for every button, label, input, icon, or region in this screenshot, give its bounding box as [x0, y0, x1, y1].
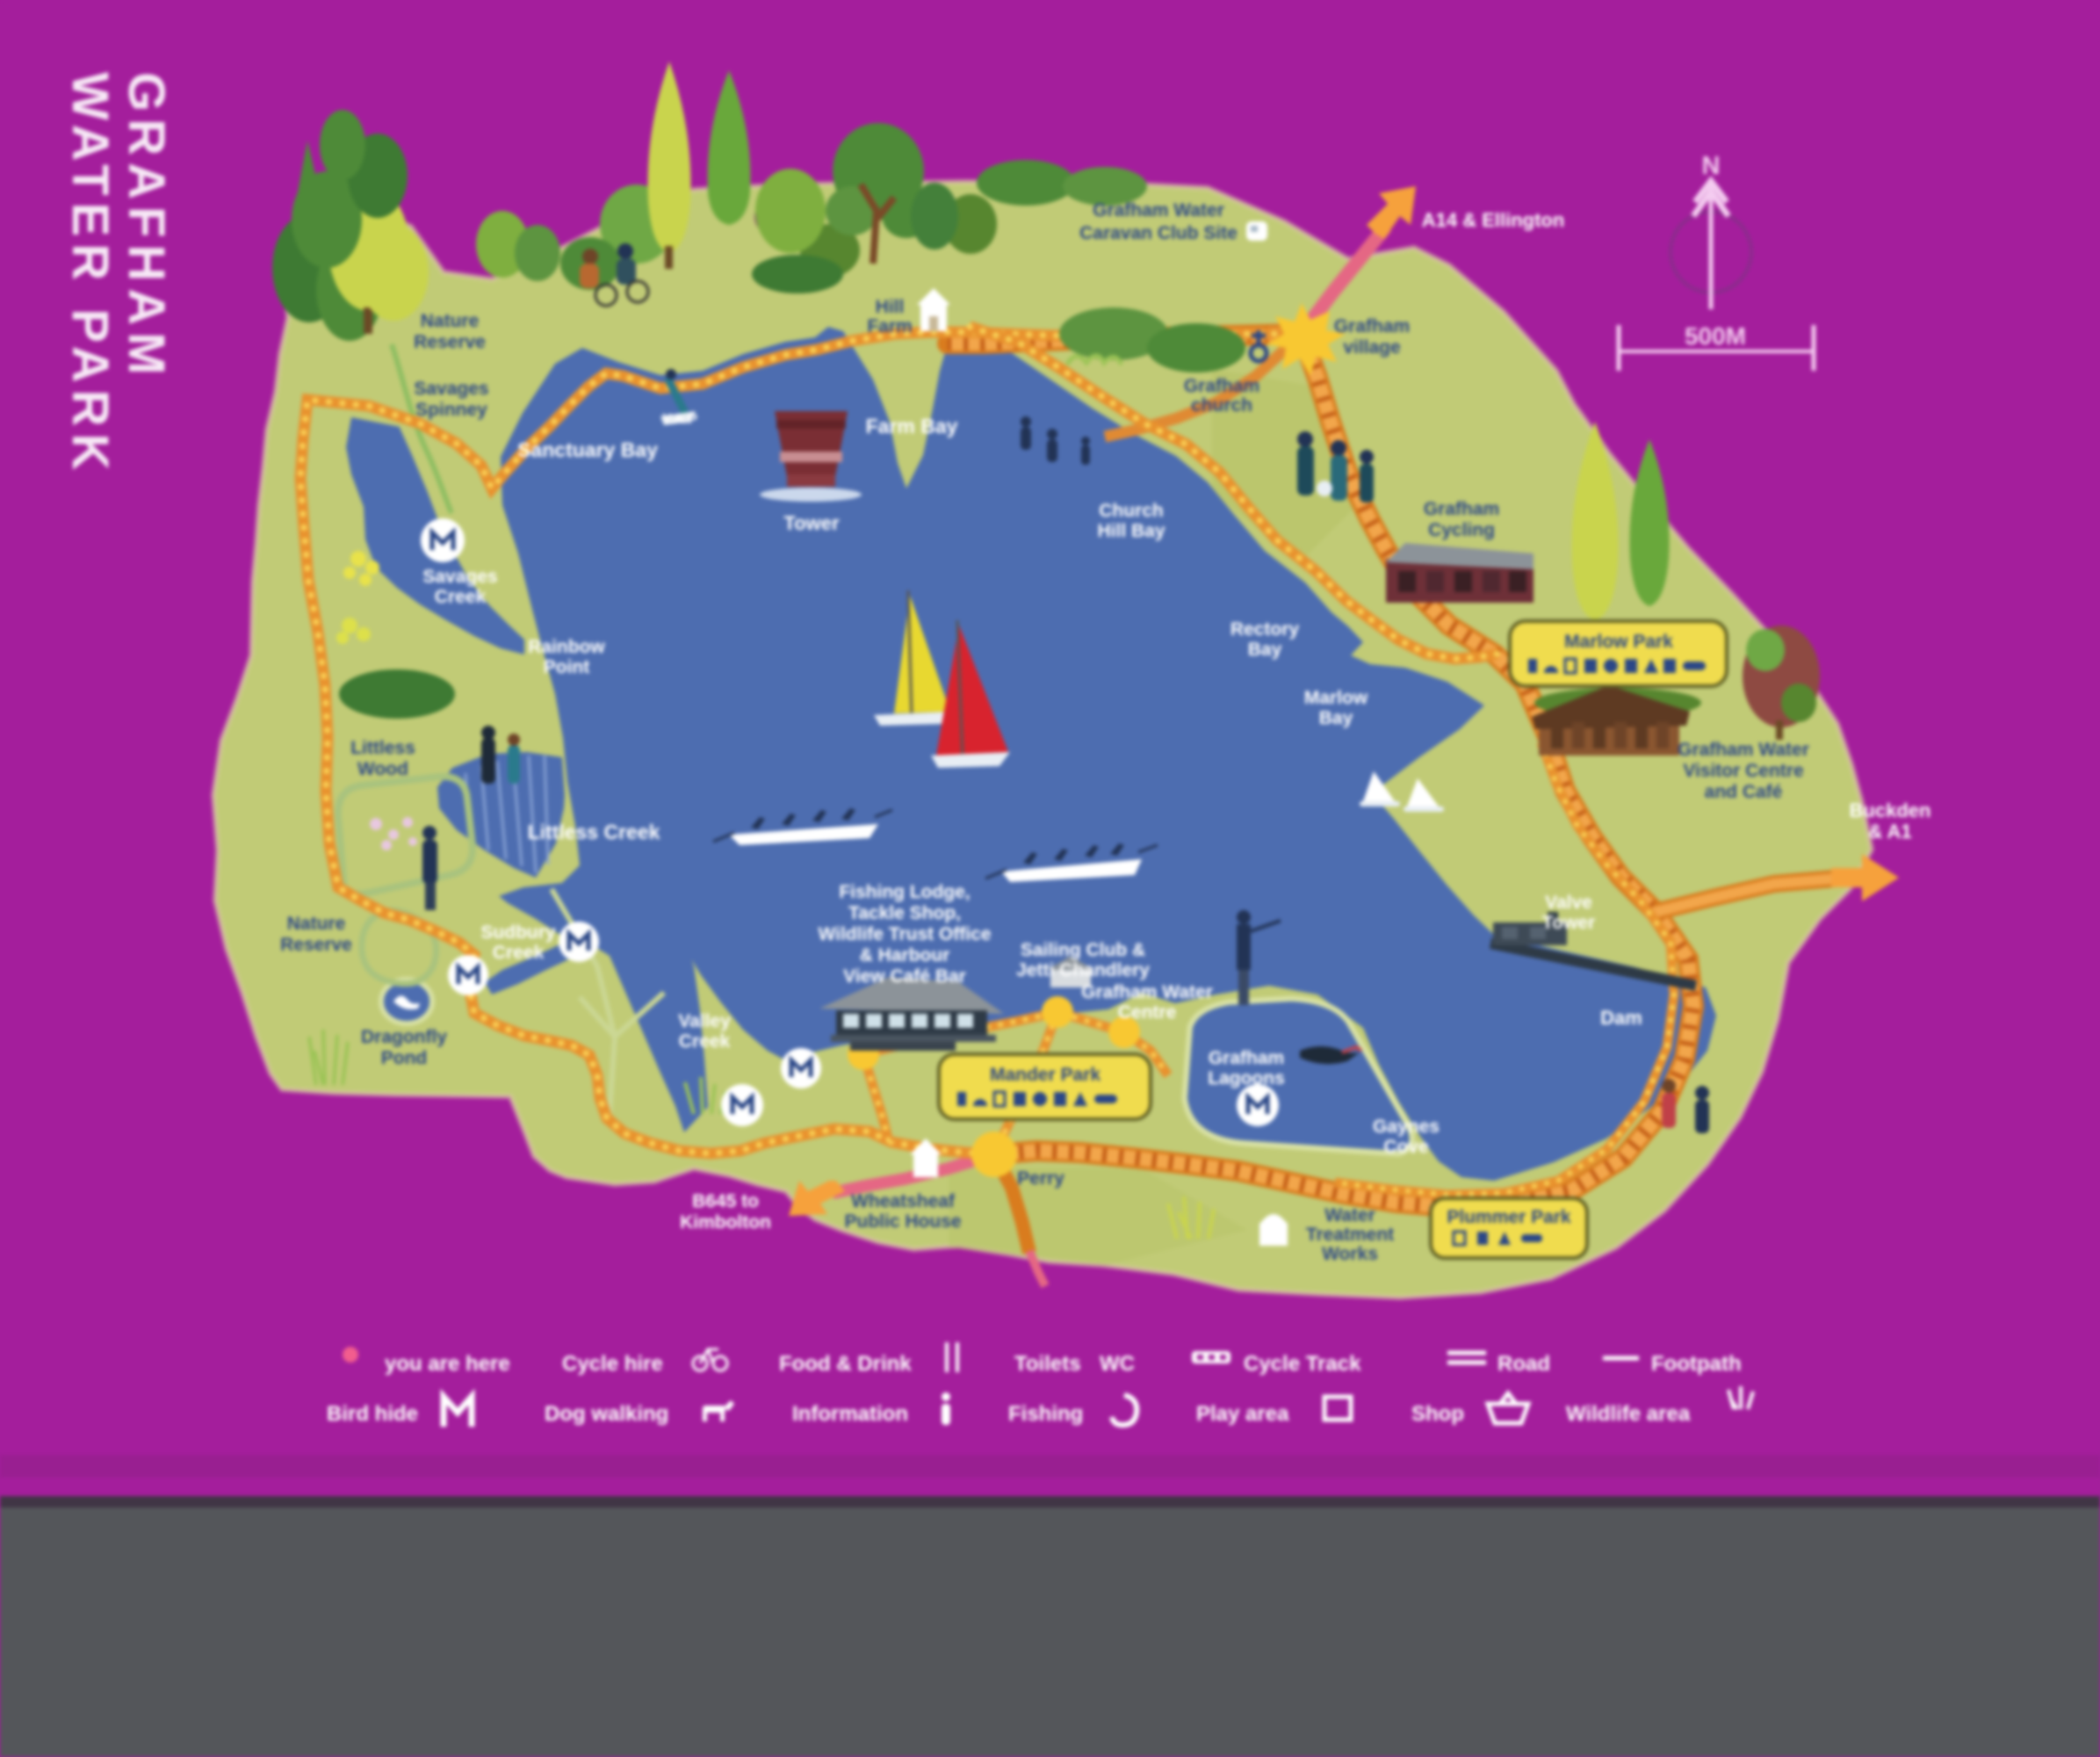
svg-text:and Café: and Café: [1705, 782, 1783, 802]
svg-text:Bay: Bay: [1248, 640, 1282, 660]
svg-text:Cove: Cove: [1383, 1137, 1428, 1157]
svg-text:Wood: Wood: [357, 759, 408, 779]
svg-text:Mander Park: Mander Park: [990, 1065, 1101, 1085]
svg-text:Marlow: Marlow: [1304, 688, 1368, 708]
svg-text:Savages: Savages: [422, 567, 497, 587]
svg-text:Play area: Play area: [1196, 1402, 1289, 1426]
svg-text:Gaynes: Gaynes: [1373, 1117, 1440, 1137]
svg-text:500M: 500M: [1685, 322, 1746, 350]
svg-text:village: village: [1343, 337, 1400, 358]
svg-text:Grafham: Grafham: [1334, 316, 1410, 336]
svg-text:Sanctuary Bay: Sanctuary Bay: [517, 438, 658, 461]
svg-text:Dam: Dam: [1600, 1007, 1642, 1029]
svg-text:Creek: Creek: [679, 1031, 731, 1052]
svg-text:Food & Drink: Food & Drink: [779, 1352, 912, 1376]
svg-text:Tackle Shop,: Tackle Shop,: [848, 903, 961, 923]
svg-text:Water: Water: [1324, 1205, 1375, 1226]
svg-text:Nature: Nature: [421, 311, 480, 331]
svg-text:Littless Creek: Littless Creek: [528, 821, 660, 843]
svg-text:Bay: Bay: [1319, 708, 1353, 728]
svg-text:WATER PARK: WATER PARK: [61, 72, 119, 477]
svg-text:Plummer Park: Plummer Park: [1447, 1207, 1571, 1227]
svg-text:Grafham Water: Grafham Water: [1678, 740, 1809, 760]
svg-text:Information: Information: [792, 1402, 908, 1426]
svg-text:Footpath: Footpath: [1651, 1352, 1742, 1376]
svg-text:Centre: Centre: [1118, 1002, 1177, 1023]
svg-text:& A1: & A1: [1868, 821, 1911, 842]
svg-text:Marlow Park: Marlow Park: [1564, 632, 1673, 652]
svg-text:Grafham Water: Grafham Water: [1093, 200, 1224, 221]
svg-text:Grafham Water: Grafham Water: [1081, 982, 1213, 1002]
svg-text:& Harbour: & Harbour: [860, 945, 950, 965]
svg-text:B645 to: B645 to: [692, 1191, 759, 1211]
svg-text:church: church: [1191, 395, 1252, 416]
svg-text:Pond: Pond: [381, 1048, 428, 1068]
svg-text:GRAFHAM: GRAFHAM: [118, 72, 175, 381]
svg-text:Wildlife area: Wildlife area: [1566, 1402, 1691, 1426]
svg-text:Hill: Hill: [876, 297, 905, 317]
svg-text:Valley: Valley: [678, 1011, 731, 1031]
svg-text:Shop: Shop: [1411, 1402, 1464, 1426]
svg-text:A14 & Ellington: A14 & Ellington: [1422, 209, 1565, 231]
svg-text:Cycling: Cycling: [1428, 520, 1495, 540]
svg-text:Creek: Creek: [435, 587, 487, 607]
svg-text:Y.A.P: Y.A.P: [662, 412, 697, 427]
svg-text:Caravan Club Site: Caravan Club Site: [1079, 223, 1238, 243]
svg-text:Grafham: Grafham: [1424, 499, 1499, 519]
svg-text:Savages: Savages: [414, 379, 488, 399]
svg-text:Littless: Littless: [350, 738, 415, 758]
svg-text:Sailing Club &: Sailing Club &: [1021, 940, 1145, 960]
svg-text:Jetti Chandlery: Jetti Chandlery: [1016, 960, 1150, 980]
svg-text:Nature: Nature: [287, 914, 346, 934]
svg-text:Cycle hire: Cycle hire: [562, 1352, 663, 1376]
svg-text:Fishing: Fishing: [1008, 1402, 1083, 1426]
svg-text:Creek: Creek: [493, 943, 545, 963]
svg-text:Wildlife Trust Office: Wildlife Trust Office: [819, 924, 992, 944]
svg-text:Road: Road: [1497, 1352, 1550, 1376]
svg-text:Grafham: Grafham: [1184, 376, 1259, 396]
svg-text:Tower: Tower: [1542, 913, 1595, 933]
svg-text:Farm Bay: Farm Bay: [866, 415, 958, 437]
svg-text:View Café Bar: View Café Bar: [843, 966, 966, 987]
svg-text:Hill Bay: Hill Bay: [1097, 521, 1165, 541]
svg-text:Farm: Farm: [867, 316, 912, 336]
svg-text:Spinney: Spinney: [415, 400, 487, 420]
svg-text:Treatment: Treatment: [1306, 1225, 1394, 1245]
svg-text:Tower: Tower: [783, 512, 840, 534]
svg-text:Bird hide: Bird hide: [327, 1402, 418, 1426]
svg-text:Rainbow: Rainbow: [528, 637, 605, 657]
svg-text:Wheatsheaf: Wheatsheaf: [851, 1191, 956, 1211]
svg-text:Works: Works: [1322, 1244, 1378, 1264]
svg-text:WC: WC: [1100, 1352, 1135, 1376]
svg-text:Grafham: Grafham: [1209, 1048, 1284, 1068]
svg-text:Public House: Public House: [844, 1211, 961, 1232]
svg-text:Visitor Centre: Visitor Centre: [1683, 761, 1803, 781]
svg-text:Dragonfly: Dragonfly: [361, 1027, 447, 1047]
svg-text:Cycle Track: Cycle Track: [1244, 1352, 1361, 1376]
svg-text:Dog walking: Dog walking: [545, 1402, 668, 1426]
svg-text:Reserve: Reserve: [414, 332, 486, 352]
svg-text:Perry: Perry: [1017, 1168, 1064, 1189]
svg-text:Buckden: Buckden: [1850, 799, 1931, 821]
svg-text:you are here: you are here: [385, 1352, 510, 1376]
svg-text:Valve: Valve: [1545, 893, 1592, 913]
svg-text:Sudbury: Sudbury: [480, 922, 555, 943]
svg-text:Point: Point: [544, 657, 590, 677]
svg-text:N: N: [1702, 152, 1721, 180]
svg-text:Reserve: Reserve: [280, 935, 352, 955]
svg-text:Church: Church: [1099, 501, 1164, 521]
svg-text:Kimbolton: Kimbolton: [680, 1212, 771, 1233]
svg-text:Toilets: Toilets: [1014, 1352, 1081, 1376]
svg-text:Rectory: Rectory: [1230, 619, 1300, 640]
svg-text:Fishing Lodge,: Fishing Lodge,: [839, 882, 970, 902]
svg-text:Lagoons: Lagoons: [1208, 1068, 1285, 1088]
